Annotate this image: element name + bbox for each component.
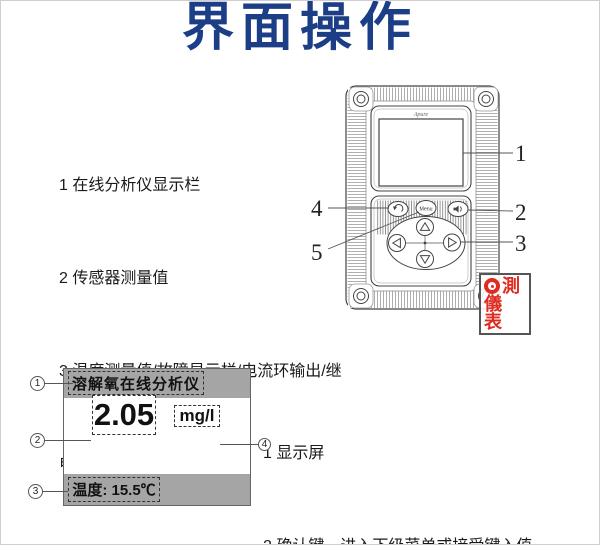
lcd-callout-3-number: 3 [33, 486, 39, 497]
device-screen: Apure [371, 106, 471, 191]
lcd-leader-1 [44, 383, 73, 384]
page-title: 界面操作 [1, 0, 599, 59]
lcd-callout-4: 4 [258, 438, 271, 451]
device-callout-2: 2 [515, 200, 527, 225]
lcd-callout-1: 1 [30, 376, 45, 391]
legend-line-2: 2 传感器测量值 [59, 263, 317, 294]
lcd-leader-3 [42, 491, 68, 492]
lcd-measurement-value: 2.05 [92, 395, 156, 435]
key-legend-line-1: 1 显示屏 [263, 438, 597, 469]
vendor-stamp: 測 儀 表 [479, 273, 531, 335]
legend-line-1: 1 在线分析仪显示栏 [59, 170, 317, 201]
device-screen-glass [379, 119, 463, 186]
lcd-callout-2-number: 2 [35, 435, 41, 446]
lcd-leader-4 [220, 444, 258, 445]
device-callout-4: 4 [311, 196, 323, 221]
device-callout-1: 1 [515, 141, 527, 166]
lcd-status-bar: 温度: 15.5℃ [64, 474, 250, 505]
lcd-screen-mockup: 溶解氧在线分析仪 2.05 mg/l 温度: 15.5℃ [63, 368, 251, 506]
stamp-text-row1: 測 [502, 277, 522, 295]
back-key [388, 202, 408, 217]
key-legend-list: 1 显示屏 2 确认键 进入下级菜单或接受键入值 3 导航键 浏览菜单、更改设置… [263, 376, 597, 545]
device-callout-5: 5 [311, 240, 323, 265]
lcd-unit: mg/l [174, 405, 220, 427]
key-legend-line-2: 2 确认键 进入下级菜单或接受键入值 [263, 531, 597, 545]
device-keypad: Menu [371, 196, 471, 286]
lcd-header-bar: 溶解氧在线分析仪 [64, 369, 250, 398]
lcd-callout-2: 2 [30, 433, 45, 448]
lcd-temperature-text: 温度: 15.5℃ [68, 477, 160, 502]
lcd-header-text: 溶解氧在线分析仪 [68, 371, 204, 395]
stamp-text-row2: 儀 表 [484, 295, 526, 331]
lcd-callout-4-number: 4 [262, 439, 268, 450]
lcd-main-area: 2.05 mg/l [64, 398, 250, 474]
manual-page: 界面操作 1 在线分析仪显示栏 2 传感器测量值 3 温度测量值/故障显示栏/电… [0, 0, 600, 545]
vendor-logo-icon [484, 278, 500, 294]
device-callout-3: 3 [515, 231, 527, 256]
lcd-leader-2 [44, 440, 91, 441]
menu-key-label: Menu [420, 206, 433, 212]
device-brand-text: Apure [413, 112, 429, 118]
lcd-callout-1-number: 1 [35, 378, 41, 389]
lcd-callout-3: 3 [28, 484, 43, 499]
